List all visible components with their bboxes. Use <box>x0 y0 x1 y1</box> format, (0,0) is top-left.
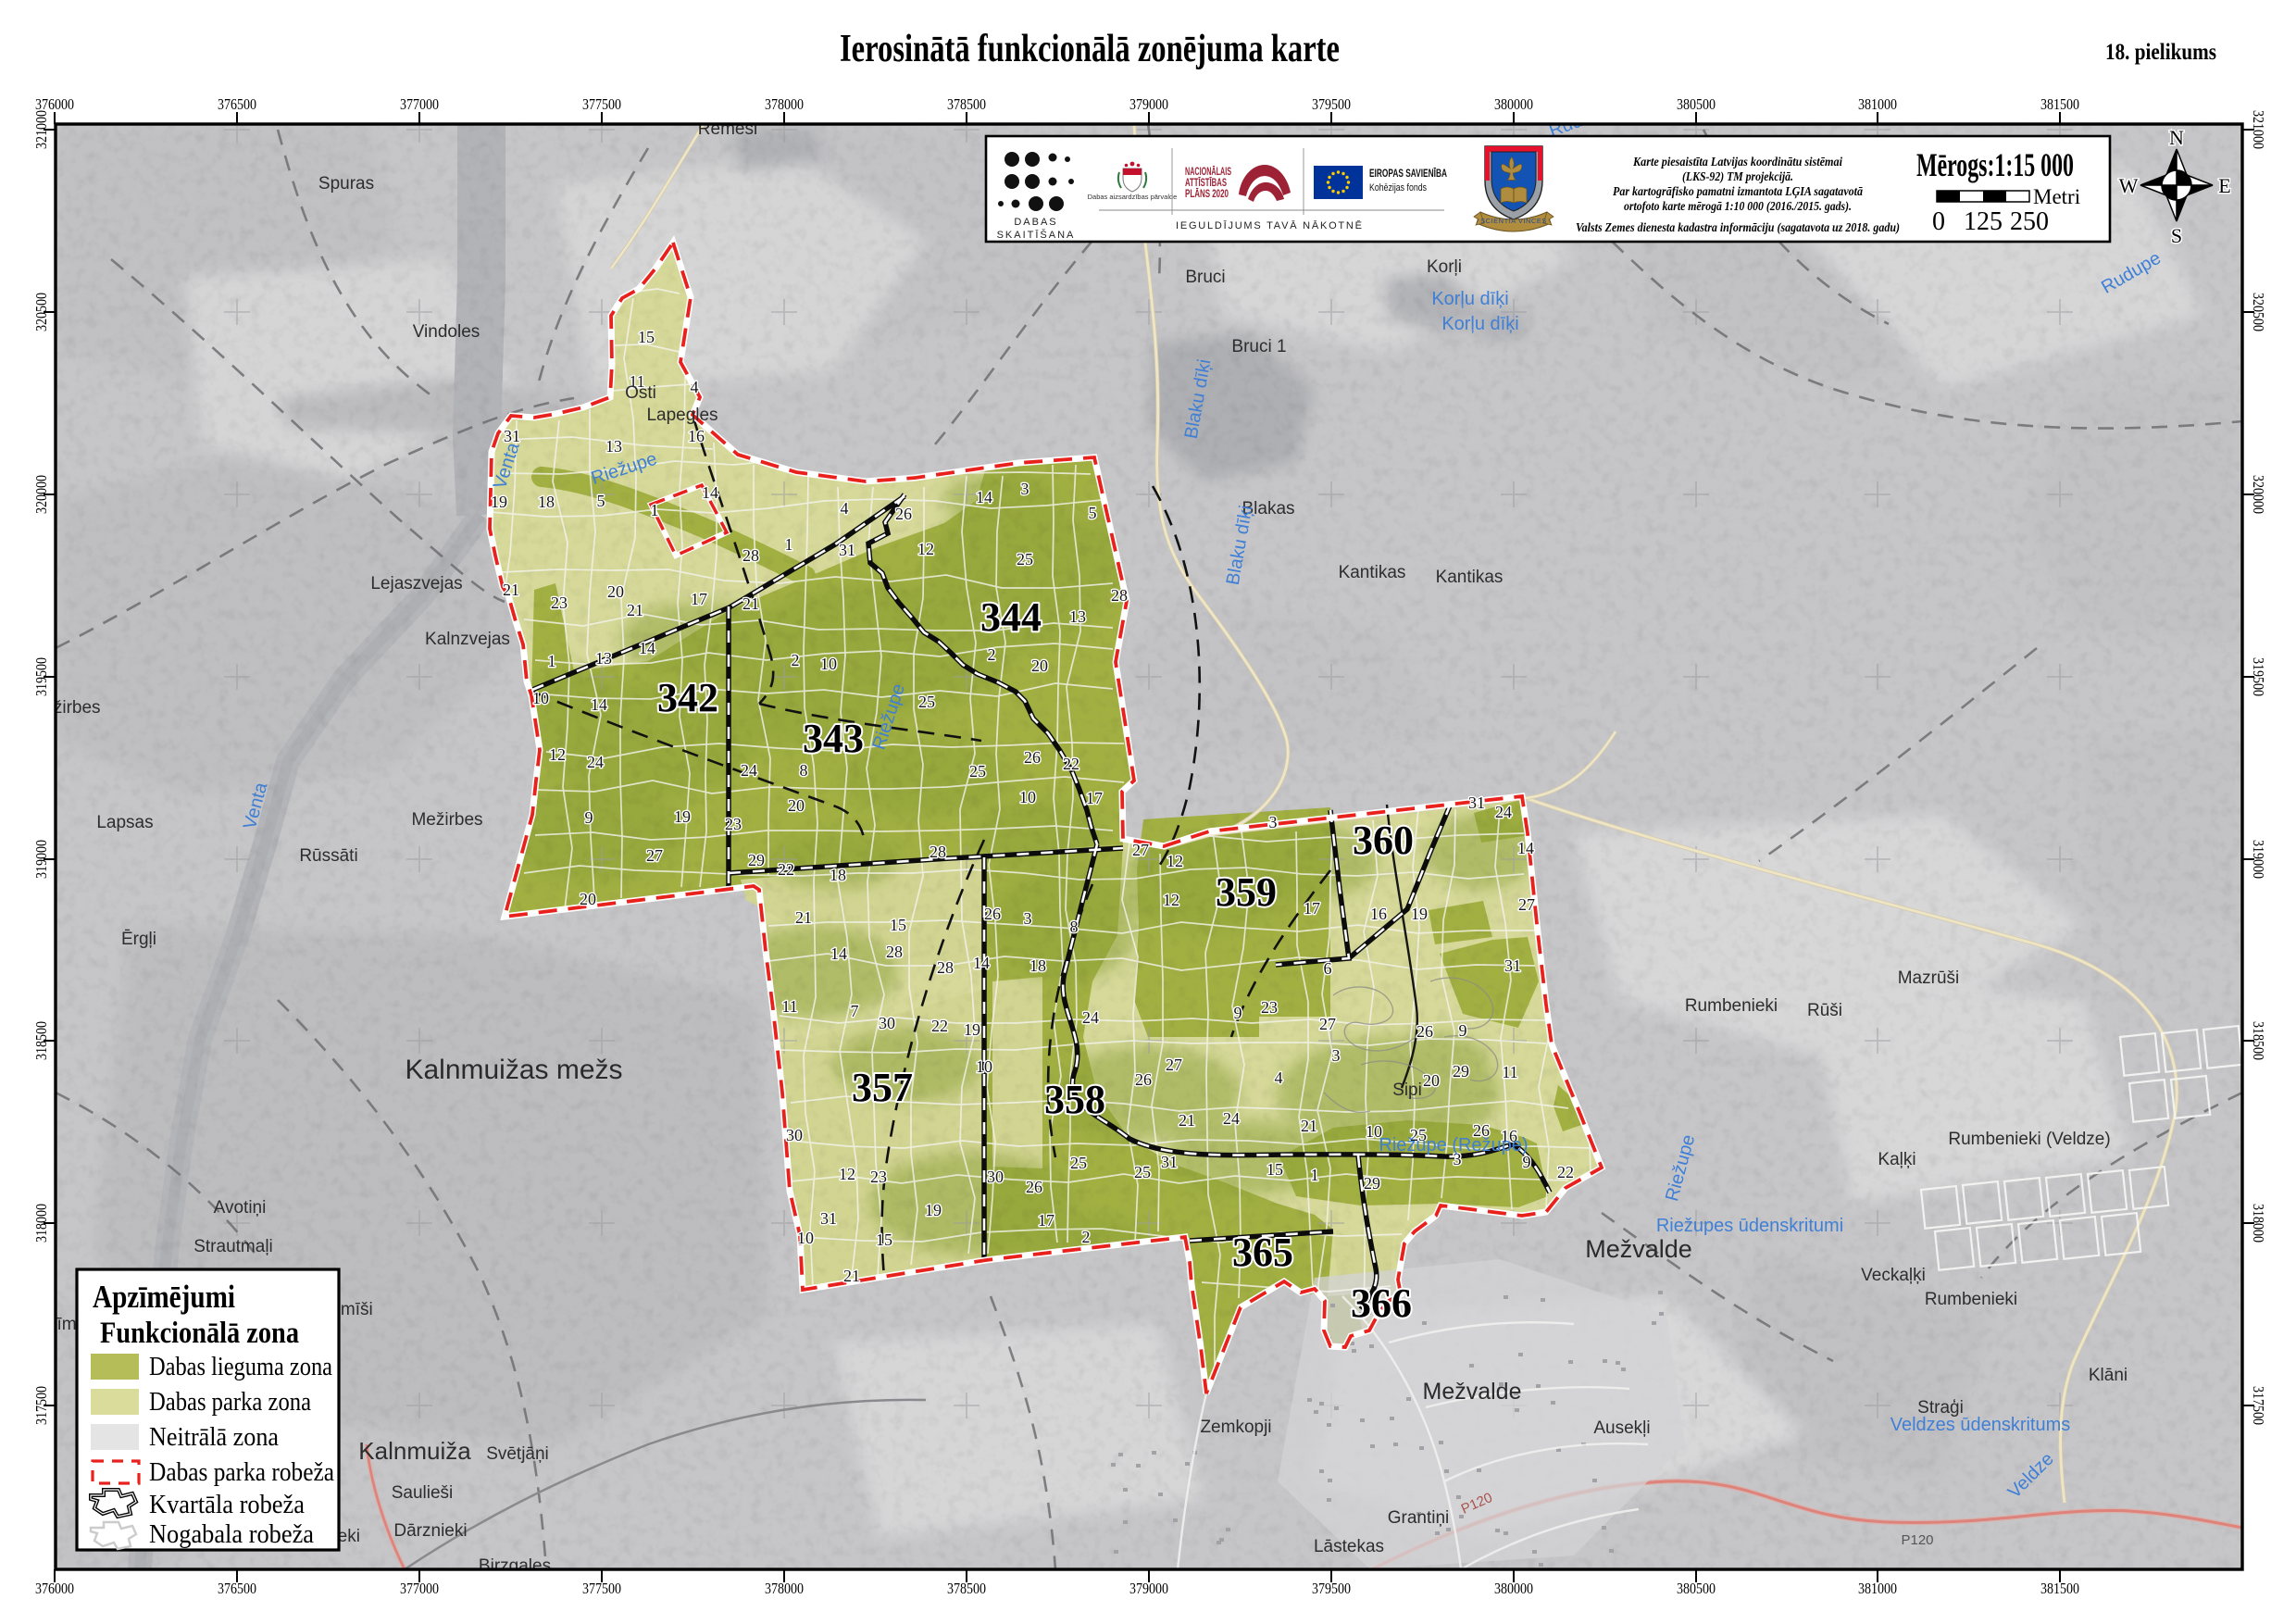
svg-text:14: 14 <box>1517 839 1534 857</box>
svg-text:2: 2 <box>988 645 996 664</box>
svg-text:5: 5 <box>597 492 605 510</box>
svg-text:11: 11 <box>1502 1063 1517 1081</box>
svg-text:4: 4 <box>691 378 699 396</box>
svg-text:31: 31 <box>1504 956 1521 975</box>
svg-text:IEGULDĪJUMS TAVĀ NĀKOTNĒ: IEGULDĪJUMS TAVĀ NĀKOTNĒ <box>1176 220 1365 231</box>
svg-text:PLĀNS 2020: PLĀNS 2020 <box>1185 189 1229 200</box>
svg-text:Dārznieki: Dārznieki <box>393 1521 467 1541</box>
svg-text:Ierosinātā funkcionālā zonējum: Ierosinātā funkcionālā zonējuma karte <box>840 28 1340 70</box>
svg-text:ATTĪSTĪBAS: ATTĪSTĪBAS <box>1185 178 1227 189</box>
svg-text:6: 6 <box>1324 959 1332 978</box>
svg-text:9: 9 <box>585 808 593 827</box>
svg-text:SKAITĪŠANA: SKAITĪŠANA <box>997 229 1076 241</box>
svg-text:16: 16 <box>688 427 705 445</box>
svg-text:25: 25 <box>1017 550 1033 568</box>
svg-text:EIROPAS SAVIENĪBA: EIROPAS SAVIENĪBA <box>1369 169 1447 180</box>
svg-text:Korļu dīķi: Korļu dīķi <box>1431 289 1508 309</box>
svg-text:26: 26 <box>1024 748 1041 767</box>
svg-text:31: 31 <box>1161 1153 1178 1171</box>
svg-text:26: 26 <box>1416 1022 1433 1041</box>
svg-text:Kalnmuižas mežs: Kalnmuižas mežs <box>405 1055 622 1085</box>
svg-text:19: 19 <box>491 493 507 511</box>
svg-text:13: 13 <box>595 649 612 668</box>
svg-text:24: 24 <box>741 761 757 780</box>
svg-text:15: 15 <box>876 1230 892 1249</box>
svg-text:381500: 381500 <box>2040 95 2079 113</box>
svg-text:4: 4 <box>1275 1068 1283 1087</box>
svg-text:Nogabala robeža: Nogabala robeža <box>149 1519 314 1549</box>
svg-text:Mežvalde: Mežvalde <box>1585 1235 1692 1263</box>
svg-text:344: 344 <box>980 594 1042 640</box>
svg-text:Valsts Zemes dienesta kadastra: Valsts Zemes dienesta kadastra informāci… <box>1576 221 1900 235</box>
svg-text:16: 16 <box>1370 905 1387 923</box>
svg-text:20: 20 <box>580 890 596 908</box>
svg-text:342: 342 <box>657 675 718 720</box>
svg-text:31: 31 <box>820 1209 837 1228</box>
svg-text:Riežupes ūdenskritumi: Riežupes ūdenskritumi <box>1656 1216 1843 1236</box>
svg-text:23: 23 <box>725 815 742 833</box>
svg-text:Spuras: Spuras <box>318 174 374 194</box>
svg-text:25: 25 <box>969 762 986 781</box>
svg-text:12: 12 <box>1163 891 1179 909</box>
svg-text:11: 11 <box>781 997 797 1016</box>
svg-text:19: 19 <box>964 1020 980 1039</box>
svg-text:19: 19 <box>925 1201 942 1219</box>
svg-text:12: 12 <box>839 1165 855 1183</box>
svg-text:9: 9 <box>1459 1021 1467 1040</box>
svg-text:Kantikas: Kantikas <box>1339 563 1406 582</box>
svg-text:Kantikas: Kantikas <box>1436 568 1504 587</box>
svg-text:Par kartogrāfisko pamatni izma: Par kartogrāfisko pamatni izmantota LĢIA… <box>1613 185 1863 199</box>
svg-text:9: 9 <box>1523 1153 1531 1171</box>
svg-text:Karte piesaistīta Latvijas koo: Karte piesaistīta Latvijas koordinātu si… <box>1632 156 1842 169</box>
svg-text:366: 366 <box>1351 1280 1412 1326</box>
svg-text:379500: 379500 <box>1312 95 1351 113</box>
svg-text:Ausekļi: Ausekļi <box>1593 1418 1650 1438</box>
svg-text:26: 26 <box>984 905 1001 923</box>
svg-text:Mežirbes: Mežirbes <box>411 810 482 830</box>
svg-text:378000: 378000 <box>765 95 804 113</box>
svg-text:27: 27 <box>646 846 663 865</box>
svg-text:24: 24 <box>1223 1109 1240 1128</box>
svg-text:SCIENTIA VINCES: SCIENTIA VINCES <box>1480 217 1547 225</box>
svg-text:22: 22 <box>778 860 794 879</box>
svg-text:26: 26 <box>895 505 912 523</box>
svg-text:30: 30 <box>987 1168 1004 1186</box>
svg-text:14: 14 <box>702 483 718 502</box>
svg-text:376500: 376500 <box>218 95 256 113</box>
svg-text:29: 29 <box>1453 1062 1469 1081</box>
svg-text:22: 22 <box>931 1017 948 1035</box>
svg-text:18: 18 <box>538 493 555 511</box>
svg-text:359: 359 <box>1216 869 1277 915</box>
svg-text:28: 28 <box>1111 586 1128 605</box>
svg-text:9: 9 <box>1234 1004 1242 1022</box>
svg-text:12: 12 <box>917 540 934 558</box>
svg-text:22: 22 <box>1063 755 1079 773</box>
svg-text:30: 30 <box>786 1126 803 1144</box>
svg-text:21: 21 <box>742 594 759 613</box>
svg-text:Osti: Osti <box>625 383 656 403</box>
svg-text:P120: P120 <box>1901 1532 1933 1548</box>
svg-text:Strautmaļi: Strautmaļi <box>193 1237 273 1256</box>
svg-text:23: 23 <box>870 1168 887 1186</box>
svg-text:18. pielikums: 18. pielikums <box>2105 40 2216 65</box>
svg-text:NACIONĀLAIS: NACIONĀLAIS <box>1185 167 1231 178</box>
svg-text:358: 358 <box>1044 1077 1105 1122</box>
svg-text:Riežupe (Režupe): Riežupe (Režupe) <box>1379 1135 1528 1156</box>
svg-text:1: 1 <box>548 652 556 670</box>
svg-text:17: 17 <box>1086 789 1103 807</box>
svg-text:22: 22 <box>1557 1163 1574 1181</box>
svg-text:3: 3 <box>1024 909 1032 928</box>
svg-text:25: 25 <box>1070 1154 1087 1172</box>
svg-text:Vindoles: Vindoles <box>413 322 480 342</box>
svg-text:Rūši: Rūši <box>1807 1001 1842 1020</box>
svg-text:27: 27 <box>1132 841 1149 859</box>
svg-text:Svētjāņi: Svētjāņi <box>486 1444 549 1464</box>
svg-text:Dabas lieguma zona: Dabas lieguma zona <box>149 1352 332 1381</box>
svg-text:Veckaļķi: Veckaļķi <box>1861 1266 1926 1285</box>
svg-text:Kalnzvejas: Kalnzvejas <box>425 630 510 649</box>
svg-text:20: 20 <box>607 582 624 601</box>
svg-text:Veldzes ūdenskritums: Veldzes ūdenskritums <box>1890 1415 2071 1435</box>
svg-text:360: 360 <box>1353 818 1414 863</box>
svg-text:Dabas aizsardzības pārvalde: Dabas aizsardzības pārvalde <box>1088 193 1178 201</box>
svg-text:1: 1 <box>785 535 793 554</box>
svg-text:Lāstekas: Lāstekas <box>1314 1537 1384 1556</box>
svg-text:3: 3 <box>1332 1046 1341 1065</box>
svg-text:2: 2 <box>1082 1228 1091 1246</box>
svg-text:15: 15 <box>1267 1160 1283 1179</box>
svg-text:21: 21 <box>1179 1111 1195 1130</box>
svg-text:Lejaszvejas: Lejaszvejas <box>370 574 462 593</box>
svg-text:29: 29 <box>1364 1174 1380 1193</box>
svg-text:Kaļķi: Kaļķi <box>1878 1150 1915 1169</box>
svg-text:Grantiņi: Grantiņi <box>1388 1508 1450 1528</box>
svg-text:14: 14 <box>639 639 655 657</box>
svg-text:28: 28 <box>886 943 903 961</box>
svg-text:28: 28 <box>930 843 946 861</box>
svg-text:20: 20 <box>788 796 805 815</box>
svg-text:21: 21 <box>1301 1117 1317 1135</box>
svg-text:(LKS-92) TM projekcijā.: (LKS-92) TM projekcijā. <box>1682 170 1793 184</box>
svg-text:380500: 380500 <box>1677 95 1716 113</box>
svg-text:357: 357 <box>852 1065 913 1110</box>
svg-text:10: 10 <box>532 689 549 707</box>
svg-text:W: W <box>2119 174 2139 197</box>
svg-text:19: 19 <box>1411 905 1428 923</box>
svg-text:14: 14 <box>830 944 847 963</box>
svg-text:10: 10 <box>820 655 837 673</box>
svg-text:Rumbenieki (Veldze): Rumbenieki (Veldze) <box>1948 1130 2110 1149</box>
svg-text:23: 23 <box>1261 998 1278 1017</box>
svg-text:Kohēzijas fonds: Kohēzijas fonds <box>1369 182 1427 194</box>
svg-text:Ērgļi: Ērgļi <box>121 930 156 949</box>
svg-text:Korļu dīķi: Korļu dīķi <box>1441 314 1518 334</box>
svg-text:12: 12 <box>1167 852 1183 870</box>
svg-text:E: E <box>2218 174 2230 197</box>
svg-text:Dabas parka robeža: Dabas parka robeža <box>149 1457 334 1487</box>
svg-text:Kalnmuiža: Kalnmuiža <box>358 1437 471 1465</box>
svg-text:14: 14 <box>976 488 992 506</box>
svg-text:Apzīmējumi: Apzīmējumi <box>93 1279 235 1315</box>
svg-text:28: 28 <box>937 958 954 977</box>
svg-text:8: 8 <box>1070 918 1079 936</box>
svg-text:1: 1 <box>1311 1166 1319 1184</box>
svg-text:Sipi: Sipi <box>1392 1081 1422 1100</box>
svg-text:377000: 377000 <box>400 95 439 113</box>
svg-text:21: 21 <box>795 908 812 927</box>
svg-text:25: 25 <box>918 693 935 711</box>
svg-text:125: 125 <box>1964 207 2003 236</box>
svg-text:381000: 381000 <box>1858 95 1897 113</box>
svg-text:17: 17 <box>1038 1211 1054 1230</box>
svg-text:27: 27 <box>1319 1015 1336 1033</box>
svg-text:Mežvalde: Mežvalde <box>1423 1379 1522 1405</box>
svg-text:27: 27 <box>1166 1056 1182 1074</box>
svg-text:3: 3 <box>1021 480 1029 498</box>
svg-text:10: 10 <box>1019 788 1036 806</box>
svg-text:Rumbenieki: Rumbenieki <box>1685 996 1778 1016</box>
svg-text:21: 21 <box>843 1267 860 1285</box>
svg-text:Rūssāti: Rūssāti <box>299 846 357 866</box>
svg-text:377500: 377500 <box>582 95 621 113</box>
svg-text:13: 13 <box>1069 607 1086 626</box>
svg-text:0: 0 <box>1932 207 1945 236</box>
svg-text:10: 10 <box>976 1057 992 1076</box>
svg-text:Kvartāla robeža: Kvartāla robeža <box>149 1490 305 1519</box>
svg-text:30: 30 <box>879 1014 895 1032</box>
svg-text:4: 4 <box>841 499 849 518</box>
svg-text:19: 19 <box>674 807 691 826</box>
svg-text:2: 2 <box>792 651 800 669</box>
svg-text:5: 5 <box>1089 504 1097 522</box>
svg-text:Korļi: Korļi <box>1427 257 1462 277</box>
svg-text:17: 17 <box>1304 899 1320 918</box>
svg-text:26: 26 <box>1135 1070 1152 1089</box>
svg-text:24: 24 <box>1082 1008 1099 1027</box>
svg-text:Mazrūši: Mazrūši <box>1898 968 1960 988</box>
svg-text:Lapegles: Lapegles <box>646 406 717 425</box>
svg-text:24: 24 <box>587 753 604 771</box>
svg-text:1: 1 <box>651 501 659 519</box>
svg-text:ortofoto karte mērogā 1:10 000: ortofoto karte mērogā 1:10 000 (2016./20… <box>1624 200 1852 214</box>
svg-text:380000: 380000 <box>1494 95 1533 113</box>
svg-text:Metri: Metri <box>2033 185 2080 208</box>
svg-text:25: 25 <box>1134 1163 1151 1181</box>
svg-text:26: 26 <box>1026 1178 1042 1196</box>
svg-text:378500: 378500 <box>947 95 986 113</box>
svg-text:23: 23 <box>551 593 568 612</box>
svg-text:Lapsas: Lapsas <box>96 813 153 832</box>
svg-text:365: 365 <box>1232 1230 1293 1275</box>
svg-text:N: N <box>2169 126 2184 149</box>
svg-text:13: 13 <box>605 437 622 456</box>
svg-text:Saulieši: Saulieši <box>392 1483 454 1503</box>
svg-text:Klāni: Klāni <box>2089 1366 2128 1385</box>
svg-text:Rumbenieki: Rumbenieki <box>1925 1290 2017 1309</box>
svg-text:3: 3 <box>1269 813 1278 831</box>
svg-text:31: 31 <box>1468 793 1485 812</box>
svg-text:8: 8 <box>800 761 808 780</box>
svg-text:14: 14 <box>591 695 607 714</box>
svg-text:21: 21 <box>503 581 519 599</box>
svg-text:379000: 379000 <box>1129 95 1168 113</box>
svg-text:Avotiņi: Avotiņi <box>214 1198 267 1218</box>
svg-text:18: 18 <box>1029 956 1046 975</box>
svg-text:15: 15 <box>638 328 655 346</box>
svg-text:28: 28 <box>742 546 759 565</box>
svg-text:14: 14 <box>973 954 990 972</box>
svg-text:Neitrālā zona: Neitrālā zona <box>149 1422 279 1452</box>
svg-text:7: 7 <box>851 1002 859 1020</box>
svg-text:12: 12 <box>549 745 566 764</box>
svg-text:29: 29 <box>748 851 765 869</box>
svg-text:250: 250 <box>2010 207 2049 236</box>
svg-text:31: 31 <box>839 541 855 559</box>
svg-text:Funkcionālā zona: Funkcionālā zona <box>100 1317 299 1350</box>
svg-text:15: 15 <box>890 916 906 934</box>
svg-text:343: 343 <box>803 716 864 761</box>
svg-text:24: 24 <box>1495 803 1512 821</box>
svg-text:10: 10 <box>797 1229 814 1247</box>
svg-text:Bruci 1: Bruci 1 <box>1231 337 1286 356</box>
svg-text:S: S <box>2171 224 2182 247</box>
svg-text:20: 20 <box>1031 656 1048 675</box>
svg-text:17: 17 <box>691 590 707 608</box>
svg-text:20: 20 <box>1423 1071 1440 1090</box>
svg-text:Dabas parka zona: Dabas parka zona <box>149 1387 311 1417</box>
svg-text:18: 18 <box>830 866 846 884</box>
svg-text:Mērogs:1:15 000: Mērogs:1:15 000 <box>1916 146 2074 183</box>
svg-text:Zemkopji: Zemkopji <box>1200 1418 1271 1437</box>
svg-text:21: 21 <box>627 601 643 619</box>
svg-text:27: 27 <box>1518 895 1535 914</box>
svg-text:DABAS: DABAS <box>1014 217 1057 228</box>
svg-text:Bruci: Bruci <box>1185 268 1225 287</box>
